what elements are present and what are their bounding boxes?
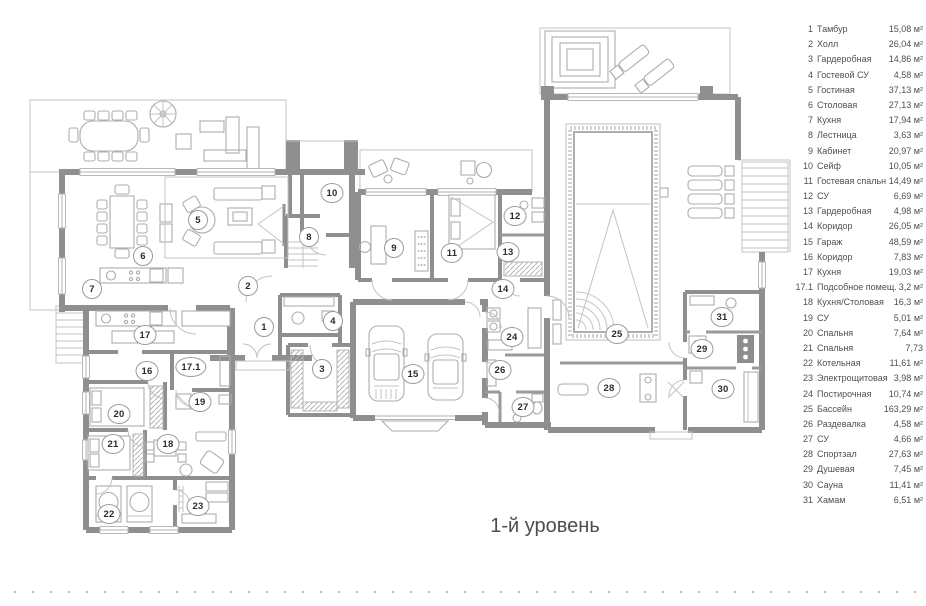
parasol-icon <box>150 101 176 127</box>
legend-room-area: 7,45 м² <box>894 464 923 474</box>
legend-room-number: 18 <box>793 297 813 307</box>
legend-room-number: 7 <box>793 115 813 125</box>
legend-room-area: 20,97 м² <box>889 146 923 156</box>
car-icon <box>425 334 466 400</box>
legend-row: 30 Сауна 11,41 м² <box>793 480 923 495</box>
legend-room-number: 22 <box>793 358 813 368</box>
legend-room-name: Кабинет <box>817 146 886 156</box>
terrace-top-right <box>540 28 730 94</box>
kitchen-17-furniture <box>96 311 230 343</box>
legend-room-name: Коридор <box>817 252 891 262</box>
wardrobe-13-units <box>504 262 542 276</box>
legend-room-name: Коридор <box>817 221 886 231</box>
legend-room-number: 23 <box>793 373 813 383</box>
legend-room-area: 14,49 м² <box>889 176 923 186</box>
guest-wc-4-fixtures <box>284 297 334 324</box>
legend-room-name: Котельная <box>817 358 886 368</box>
legend-room-area: 163,29 м² <box>884 404 923 414</box>
legend-room-number: 17 <box>793 267 813 277</box>
legend-room-area: 27,13 м² <box>889 100 923 110</box>
legend-room-area: 10,05 м² <box>889 161 923 171</box>
bedroom-11-furniture <box>449 195 495 251</box>
legend-room-number: 11 <box>793 176 813 186</box>
legend-row: 17 Кухня 19,03 м² <box>793 267 923 282</box>
legend-row: 27 СУ 4,66 м² <box>793 434 923 449</box>
legend-room-name: Гардеробная <box>817 54 886 64</box>
legend-row: 26 Раздевалка 4,58 м² <box>793 419 923 434</box>
legend-room-area: 5,01 м² <box>894 313 923 323</box>
laundry-24-fixtures <box>487 308 541 350</box>
legend-room-name: Гостевой СУ <box>817 70 891 80</box>
legend-room-number: 14 <box>793 221 813 231</box>
hamam-31-fixtures <box>690 296 736 308</box>
legend-room-area: 4,58 м² <box>894 70 923 80</box>
legend-room-number: 16 <box>793 252 813 262</box>
legend-room-number: 30 <box>793 480 813 490</box>
legend-room-name: Раздевалка <box>817 419 891 429</box>
legend-row: 24 Постирочная 10,74 м² <box>793 389 923 404</box>
legend-room-area: 4,58 м² <box>894 419 923 429</box>
legend-row: 8 Лестница 3,63 м² <box>793 130 923 145</box>
legend-row: 13 Гардеробная 4,98 м² <box>793 206 923 221</box>
legend-room-area: 26,05 м² <box>889 221 923 231</box>
legend-room-number: 2 <box>793 39 813 49</box>
legend-row: 9 Кабинет 20,97 м² <box>793 146 923 161</box>
legend-room-name: Электрощитовая <box>817 373 891 383</box>
dining-room-6-furniture <box>97 185 172 258</box>
legend-room-name: Тамбур <box>817 24 886 34</box>
legend-row: 23 Электрощитовая 3,98 м² <box>793 373 923 388</box>
pool-side-benches <box>553 300 561 344</box>
legend-room-name: Спортзал <box>817 449 886 459</box>
legend-row: 25 Бассейн 163,29 м² <box>793 404 923 419</box>
legend-row: 4 Гостевой СУ 4,58 м² <box>793 70 923 85</box>
car-icon <box>366 326 407 401</box>
legend-room-name: Кухня <box>817 115 886 125</box>
legend-room-area: 10,74 м² <box>889 389 923 399</box>
legend-room-name: СУ <box>817 434 891 444</box>
legend-room-area: 26,04 м² <box>889 39 923 49</box>
legend-room-number: 9 <box>793 146 813 156</box>
legend-room-number: 3 <box>793 54 813 64</box>
legend-room-area: 3,98 м² <box>894 373 923 383</box>
legend-room-area: 15,08 м² <box>889 24 923 34</box>
legend-row: 15 Гараж 48,59 м² <box>793 237 923 252</box>
legend-room-area: 37,13 м² <box>889 85 923 95</box>
pool-loungers <box>688 166 734 218</box>
legend-room-name: Гараж <box>817 237 886 247</box>
legend-room-name: Гостевая спальня <box>817 176 886 186</box>
garage-door <box>375 416 455 431</box>
legend-row: 19 СУ 5,01 м² <box>793 313 923 328</box>
legend-room-number: 1 <box>793 24 813 34</box>
shower-29-fixtures <box>689 336 706 353</box>
legend-room-name: СУ <box>817 313 891 323</box>
legend-room-name: Сейф <box>817 161 886 171</box>
legend-room-area: 6,51 м² <box>894 495 923 505</box>
sun-lounger-icon <box>634 58 675 93</box>
legend-room-name: Постирочная <box>817 389 886 399</box>
legend-row: 31 Хамам 6,51 м² <box>793 495 923 510</box>
legend-room-number: 12 <box>793 191 813 201</box>
legend-room-name: Подсобное помещ. <box>817 282 896 292</box>
wardrobe-3-units <box>291 350 349 411</box>
legend: 1 Тамбур 15,08 м² 2 Холл 26,04 м² 3 Гард… <box>793 24 923 510</box>
legend-room-number: 19 <box>793 313 813 323</box>
stairs-8-icon <box>288 238 318 268</box>
legend-room-name: Кухня <box>817 267 886 277</box>
legend-room-name: Сауна <box>817 480 886 490</box>
level-caption: 1-й уровень <box>435 515 655 538</box>
dotted-border <box>6 589 922 595</box>
legend-room-number: 17.1 <box>793 282 813 292</box>
legend-room-number: 29 <box>793 464 813 474</box>
legend-room-area: 4,98 м² <box>894 206 923 216</box>
legend-row: 18 Кухня/Столовая 16,3 м² <box>793 297 923 312</box>
floor-plan-page: .w{stroke:#8f8f8f;stroke-width:6;fill:no… <box>0 0 926 606</box>
legend-room-name: Холл <box>817 39 886 49</box>
sauna-30-fixtures <box>690 335 758 422</box>
legend-room-number: 5 <box>793 85 813 95</box>
legend-room-name: Столовая <box>817 100 886 110</box>
legend-row: 1 Тамбур 15,08 м² <box>793 24 923 39</box>
legend-room-area: 27,63 м² <box>889 449 923 459</box>
kitchen-7-furniture <box>100 268 183 283</box>
legend-room-area: 17,94 м² <box>889 115 923 125</box>
gym-28-equipment <box>558 374 684 402</box>
legend-row: 10 Сейф 10,05 м² <box>793 161 923 176</box>
legend-row: 28 Спортзал 27,63 м² <box>793 449 923 464</box>
office-9-furniture <box>360 226 429 271</box>
terrace-right-stairs-icon <box>738 160 790 252</box>
legend-room-number: 31 <box>793 495 813 505</box>
wc-27-fixtures <box>513 394 543 422</box>
legend-room-area: 11,41 м² <box>889 480 923 490</box>
legend-row: 7 Кухня 17,94 м² <box>793 115 923 130</box>
terrace-middle <box>360 150 532 192</box>
pool <box>566 124 668 340</box>
legend-room-area: 48,59 м² <box>889 237 923 247</box>
legend-room-number: 15 <box>793 237 813 247</box>
legend-room-number: 21 <box>793 343 813 353</box>
legend-room-name: Спальня <box>817 343 902 353</box>
legend-room-number: 26 <box>793 419 813 429</box>
legend-room-number: 8 <box>793 130 813 140</box>
spa-icon <box>545 31 615 88</box>
bathroom-12-fixtures <box>520 198 544 222</box>
legend-row: 2 Холл 26,04 м² <box>793 39 923 54</box>
legend-room-name: Кухня/Столовая <box>817 297 891 307</box>
legend-room-number: 24 <box>793 389 813 399</box>
legend-room-number: 25 <box>793 404 813 414</box>
legend-room-number: 6 <box>793 100 813 110</box>
legend-room-area: 7,64 м² <box>894 328 923 338</box>
legend-row: 3 Гардеробная 14,86 м² <box>793 54 923 69</box>
kitchen-dining-18-furniture <box>146 432 226 476</box>
legend-row: 22 Котельная 11,61 м² <box>793 358 923 373</box>
legend-room-number: 20 <box>793 328 813 338</box>
outdoor-dining-set <box>69 111 149 161</box>
legend-room-name: Хамам <box>817 495 891 505</box>
legend-room-number: 10 <box>793 161 813 171</box>
legend-room-name: Спальня <box>817 328 891 338</box>
legend-room-area: 3,2 м² <box>899 282 923 292</box>
legend-room-number: 28 <box>793 449 813 459</box>
legend-row: 5 Гостиная 37,13 м² <box>793 85 923 100</box>
legend-room-name: СУ <box>817 191 891 201</box>
legend-room-area: 14,86 м² <box>889 54 923 64</box>
legend-room-area: 4,66 м² <box>894 434 923 444</box>
legend-row: 11 Гостевая спальня 14,49 м² <box>793 176 923 191</box>
legend-room-name: Душевая <box>817 464 891 474</box>
legend-room-name: Гардеробная <box>817 206 891 216</box>
legend-room-number: 13 <box>793 206 813 216</box>
legend-row: 16 Коридор 7,83 м² <box>793 252 923 267</box>
changing-room-26-fixtures <box>487 360 496 386</box>
legend-row: 12 СУ 6,69 м² <box>793 191 923 206</box>
outdoor-stairs-icon <box>56 306 86 363</box>
legend-room-number: 4 <box>793 70 813 80</box>
legend-room-area: 16,3 м² <box>894 297 923 307</box>
legend-room-area: 11,61 м² <box>889 358 923 368</box>
legend-room-name: Лестница <box>817 130 891 140</box>
legend-row: 29 Душевая 7,45 м² <box>793 464 923 479</box>
legend-room-number: 27 <box>793 434 813 444</box>
living-room-5-furniture <box>165 177 288 258</box>
legend-room-name: Гостиная <box>817 85 886 95</box>
outdoor-lounge-set <box>176 117 259 169</box>
legend-row: 17.1 Подсобное помещ. 3,2 м² <box>793 282 923 297</box>
legend-room-area: 6,69 м² <box>894 191 923 201</box>
bedroom-21-furniture <box>88 434 144 476</box>
legend-room-area: 19,03 м² <box>889 267 923 277</box>
legend-row: 21 Спальня 7,73 <box>793 343 923 358</box>
legend-row: 20 Спальня 7,64 м² <box>793 328 923 343</box>
bathroom-19-fixtures <box>176 394 231 409</box>
legend-room-name: Бассейн <box>817 404 881 414</box>
legend-room-area: 3,63 м² <box>894 130 923 140</box>
legend-room-area: 7,73 <box>905 343 923 353</box>
legend-row: 6 Столовая 27,13 м² <box>793 100 923 115</box>
legend-room-area: 7,83 м² <box>894 252 923 262</box>
electrical-room-23-shelves <box>179 482 228 523</box>
legend-row: 14 Коридор 26,05 м² <box>793 221 923 236</box>
